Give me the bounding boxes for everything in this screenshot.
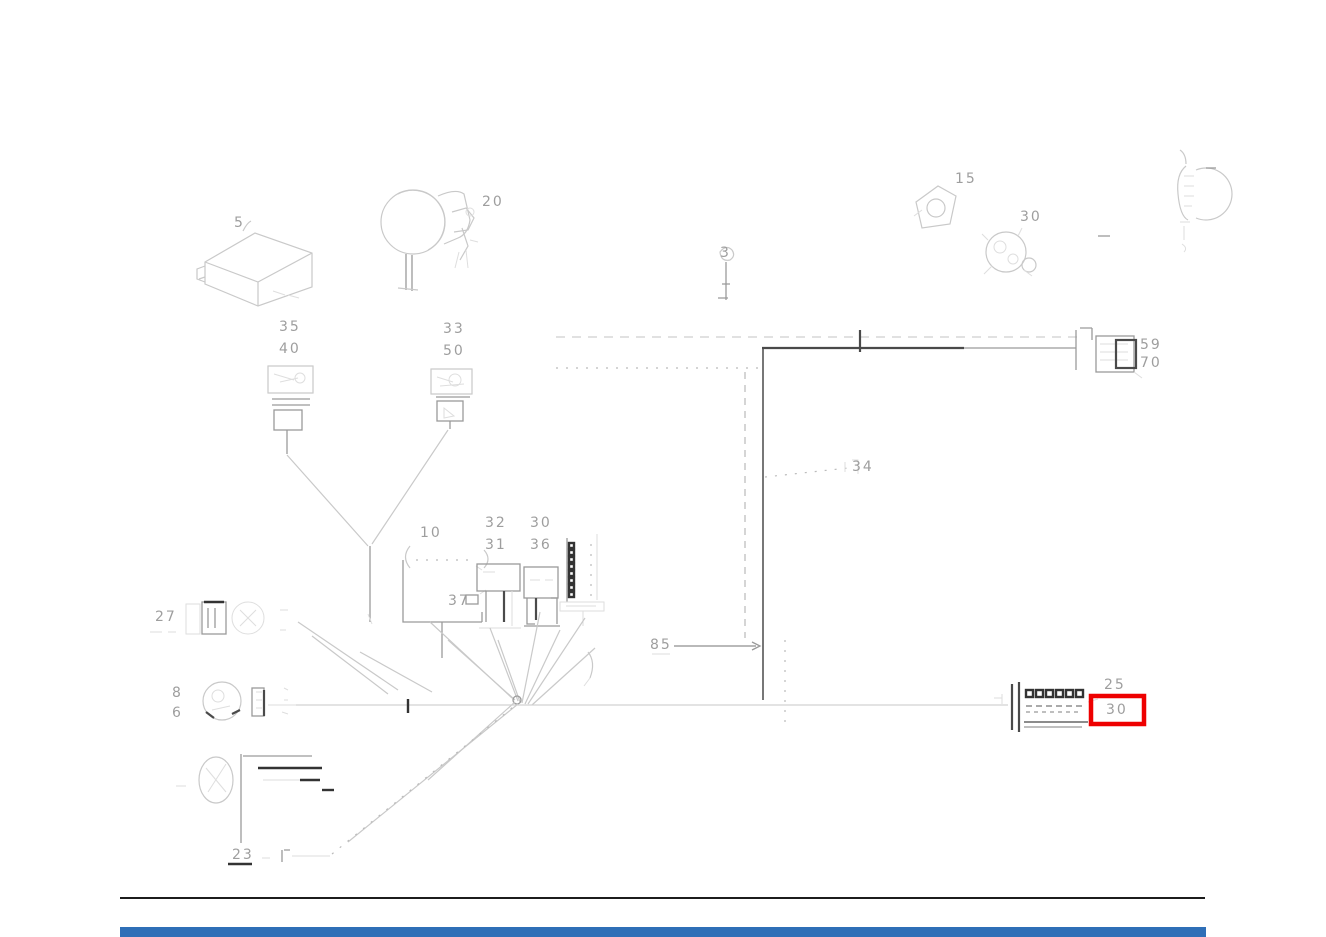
part-label-stack-right-top: 33 — [443, 322, 465, 336]
part-label-trunk-leader: 85 — [650, 638, 672, 652]
part-label-branch-leader: 34 — [852, 460, 874, 474]
part-label-bottom-leader: 23 — [232, 848, 254, 862]
footer-bar — [120, 927, 1206, 937]
part-label-conn-lower-left: 27 — [155, 610, 177, 624]
part-label-cluster-bracket: 10 — [420, 526, 442, 540]
bracket-part-drawing — [176, 754, 334, 843]
part-label-stack-right-bottom: 50 — [443, 344, 465, 358]
branch-leader-line — [765, 460, 858, 477]
part-label-relay-a-bottom: 31 — [485, 538, 507, 552]
lower-harness-line — [268, 699, 1008, 713]
part-label-relay-a-top: 32 — [485, 516, 507, 530]
part-label-conn-upper-right-bottom: 70 — [1140, 356, 1162, 370]
connector-upper-right-drawing — [1076, 328, 1142, 378]
part-label-horn: 20 — [482, 195, 504, 209]
part-label-relay-b-top: 30 — [530, 516, 552, 530]
part-label-cluster-box: 37 — [448, 594, 470, 608]
part-label-stack-left-bottom: 40 — [279, 342, 301, 356]
harness-branch-left — [298, 546, 432, 694]
connector-round-drawing — [203, 682, 288, 720]
cluster-bracket-drawing — [403, 546, 488, 658]
connector-lower-right-drawing — [994, 682, 1098, 732]
connector-stack-right-drawing — [372, 369, 472, 544]
bulb-far-right-drawing — [1178, 150, 1232, 252]
ecu-module-drawing — [197, 221, 312, 306]
connector-stack-left-drawing — [268, 366, 368, 546]
relay-b-drawing — [524, 567, 560, 626]
part-label-relay-b-bottom: 36 — [530, 538, 552, 552]
relay-a-drawing — [477, 564, 521, 628]
horn-drawing — [381, 190, 478, 291]
part-label-conn-upper-right-top: 59 — [1140, 338, 1162, 352]
part-label-conn-lower-right: 25 — [1104, 678, 1126, 692]
part-label-flasher-top-right: 30 — [1020, 210, 1042, 224]
part-label-highlighted: 30 — [1106, 703, 1128, 717]
lamp-top-right-drawing — [914, 186, 956, 228]
part-label-stack-left-top: 35 — [279, 320, 301, 334]
pin-strip-connector-drawing — [560, 534, 604, 686]
bottom-leader-line — [228, 703, 518, 864]
flasher-top-right-drawing — [982, 228, 1036, 276]
part-label-conn-round-bottom: 6 — [172, 706, 183, 720]
part-label-ecu: 5 — [234, 216, 245, 230]
upper-harness-lines — [556, 330, 1078, 722]
part-label-lamp-top-right: 15 — [955, 172, 977, 186]
wiring-harness-diagram — [0, 0, 1326, 937]
parts-diagram-page: 5 20 15 30 35 40 33 50 3 59 70 34 10 37 … — [0, 0, 1326, 937]
part-label-conn-round-top: 8 — [172, 686, 183, 700]
part-label-top-center: 3 — [720, 246, 731, 260]
harness-convergence — [348, 612, 595, 842]
